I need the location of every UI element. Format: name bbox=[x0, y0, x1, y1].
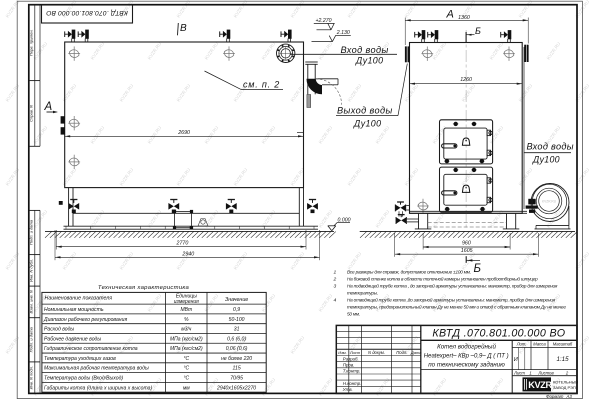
svg-text:А: А bbox=[44, 101, 53, 113]
svg-text:Подп. и дата: Подп. и дата bbox=[29, 327, 34, 353]
svg-text:31: 31 bbox=[234, 327, 240, 333]
svg-text:Техническая характеристика: Техническая характеристика bbox=[98, 285, 190, 291]
svg-text:КОТЕЛЬНЫЙ: КОТЕЛЬНЫЙ bbox=[553, 379, 578, 384]
svg-text:Справ. N: Справ. N bbox=[29, 105, 34, 122]
svg-text:Изм.: Изм. bbox=[338, 350, 347, 355]
svg-text:Выход воды: Выход воды bbox=[337, 105, 393, 115]
svg-text:Формат: Формат bbox=[546, 394, 564, 399]
svg-text:МПа (кгс/см2): МПа (кгс/см2) bbox=[170, 346, 203, 352]
svg-text:70/95: 70/95 bbox=[230, 376, 243, 382]
svg-text:1260: 1260 bbox=[460, 77, 472, 83]
svg-text:Вход воды: Вход воды bbox=[341, 45, 389, 55]
svg-text:1:15: 1:15 bbox=[556, 356, 569, 363]
svg-text:0,06 (0,6): 0,06 (0,6) bbox=[226, 346, 248, 352]
svg-text:50 мм.: 50 мм. bbox=[347, 312, 360, 317]
svg-text:Масштаб: Масштаб bbox=[553, 342, 573, 347]
svg-text:Перв. примен.: Перв. примен. bbox=[29, 29, 34, 56]
svg-text:Т.контр.: Т.контр. bbox=[343, 369, 361, 374]
svg-text:измерения: измерения bbox=[174, 299, 199, 305]
svg-text:Лит.: Лит. bbox=[516, 342, 527, 347]
svg-text:Дата: Дата bbox=[410, 350, 422, 355]
svg-text:Масса: Масса bbox=[533, 342, 546, 347]
svg-text:2: 2 bbox=[333, 277, 337, 283]
svg-text:1: 1 bbox=[529, 370, 531, 375]
svg-text:Гидравлическое сопротивление к: Гидравлическое сопротивление котла bbox=[44, 346, 138, 352]
svg-text:Расход воды: Расход воды bbox=[44, 327, 74, 333]
svg-text:м3/ч: м3/ч bbox=[181, 327, 192, 333]
svg-text:КВТД .070.801.00.000 ВО: КВТД .070.801.00.000 ВО bbox=[46, 9, 128, 16]
svg-text:Подп. и дата: Подп. и дата bbox=[29, 219, 34, 245]
svg-text:2940х1605х2270: 2940х1605х2270 bbox=[216, 385, 256, 391]
svg-text:960: 960 bbox=[462, 241, 471, 247]
svg-text:КВТД .070.801.00.000 ВО: КВТД .070.801.00.000 ВО bbox=[432, 327, 565, 339]
svg-text:Б: Б bbox=[474, 263, 482, 275]
svg-text:Утв.: Утв. bbox=[343, 387, 353, 392]
svg-text:температуры, предохранительный: температуры, предохранительный клапан Ду… bbox=[347, 304, 566, 310]
svg-text:В: В bbox=[180, 23, 187, 34]
svg-text:ЗАВОД РЭП: ЗАВОД РЭП bbox=[553, 385, 576, 390]
svg-text:На отводящей трубе котла ,до з: На отводящей трубе котла ,до запорной ар… bbox=[347, 297, 556, 303]
svg-text:И: И bbox=[514, 357, 518, 363]
svg-text:N докум.: N докум. bbox=[368, 350, 385, 355]
svg-text:2940: 2940 bbox=[181, 251, 194, 257]
svg-text:Температура воды (Вход/Выход): Температура воды (Вход/Выход) bbox=[44, 376, 123, 382]
svg-text:Пров.: Пров. bbox=[343, 362, 355, 367]
svg-text:не более 220: не более 220 bbox=[221, 356, 252, 362]
svg-text:50-100: 50-100 bbox=[229, 317, 245, 323]
svg-text:Взам. инв. N: Взам. инв. N bbox=[29, 290, 34, 313]
svg-text:%: % bbox=[184, 317, 189, 323]
svg-text:А: А bbox=[446, 9, 454, 21]
svg-text:Максимальная рабочая температу: Максимальная рабочая температура воды bbox=[44, 366, 149, 372]
svg-text:Номинальная мощность: Номинальная мощность bbox=[44, 307, 104, 313]
svg-text:Листов: Листов bbox=[537, 370, 554, 375]
svg-text:МПа (кгс/см2): МПа (кгс/см2) bbox=[170, 336, 203, 342]
svg-text:0,6 (6,0): 0,6 (6,0) bbox=[227, 336, 246, 342]
svg-text:°С: °С bbox=[183, 376, 189, 382]
svg-text:Разраб.: Разраб. bbox=[343, 356, 359, 361]
svg-text:температуры.: температуры. bbox=[347, 291, 378, 296]
svg-text:Ду100: Ду100 bbox=[532, 154, 560, 164]
svg-text:4: 4 bbox=[334, 298, 337, 304]
svg-text:мм: мм bbox=[183, 385, 190, 391]
svg-text:Диапазон рабочего регулировани: Диапазон рабочего регулирования bbox=[43, 317, 127, 323]
svg-text:1: 1 bbox=[334, 270, 337, 276]
svg-text:Лист: Лист bbox=[513, 370, 525, 375]
svg-text:Инв. N подл.: Инв. N подл. bbox=[29, 366, 34, 389]
svg-text:Ду100: Ду100 bbox=[353, 118, 381, 128]
svg-text:На боковой стенке котла в обла: На боковой стенке котла в области топочн… bbox=[347, 276, 538, 282]
svg-text:Инв. N дубл.: Инв. N дубл. bbox=[29, 259, 34, 282]
svg-text:Лист: Лист bbox=[349, 350, 361, 355]
svg-text:Температура уходящих газов: Температура уходящих газов bbox=[44, 356, 116, 362]
svg-text:KVZR.RU: KVZR.RU bbox=[542, 199, 557, 203]
svg-text:2690: 2690 bbox=[177, 130, 190, 136]
svg-text:115: 115 bbox=[233, 366, 241, 372]
svg-text:0,9: 0,9 bbox=[233, 307, 240, 313]
svg-text:Вход воды: Вход воды bbox=[527, 141, 574, 151]
svg-text:Б: Б bbox=[475, 26, 481, 36]
svg-text:Габариты котла (длина х ширина: Габариты котла (длина х ширина х высота) bbox=[44, 385, 152, 391]
svg-text:Подп.: Подп. bbox=[396, 350, 407, 355]
svg-text:Котел водогрейный: Котел водогрейный bbox=[437, 344, 496, 351]
svg-text:Наименование показателя: Наименование показателя bbox=[45, 296, 113, 302]
svg-text:Рабочее давление воды: Рабочее давление воды bbox=[44, 336, 101, 342]
svg-text:°С: °С bbox=[183, 356, 189, 362]
svg-text:Все размеры для справок, допус: Все размеры для справок, допустимое откл… bbox=[347, 270, 471, 275]
svg-text:°С: °С bbox=[183, 366, 189, 372]
svg-text:На подводящей трубе котла ,: На подводящей трубе котла , до запорной … bbox=[347, 283, 558, 289]
svg-text:3: 3 bbox=[334, 284, 337, 290]
svg-text:Heatexpert– КВр –0,9– Д ( ПТ ): Heatexpert– КВр –0,9– Д ( ПТ ) bbox=[424, 354, 509, 360]
svg-text:Н.контр.: Н.контр. bbox=[343, 381, 362, 386]
svg-text:А3: А3 bbox=[566, 394, 573, 399]
svg-text:1360: 1360 bbox=[458, 15, 470, 21]
svg-text:Ду100: Ду100 bbox=[355, 56, 383, 66]
svg-text:2770: 2770 bbox=[176, 241, 189, 247]
svg-text:1605: 1605 bbox=[461, 248, 473, 254]
svg-text:МВт: МВт bbox=[180, 307, 192, 313]
svg-text:Значение: Значение bbox=[225, 297, 248, 303]
svg-text:см. п. 2: см. п. 2 bbox=[243, 80, 280, 90]
svg-text:KVZR: KVZR bbox=[528, 380, 552, 390]
svg-text:по техническому заданию: по техническому заданию bbox=[428, 361, 505, 368]
